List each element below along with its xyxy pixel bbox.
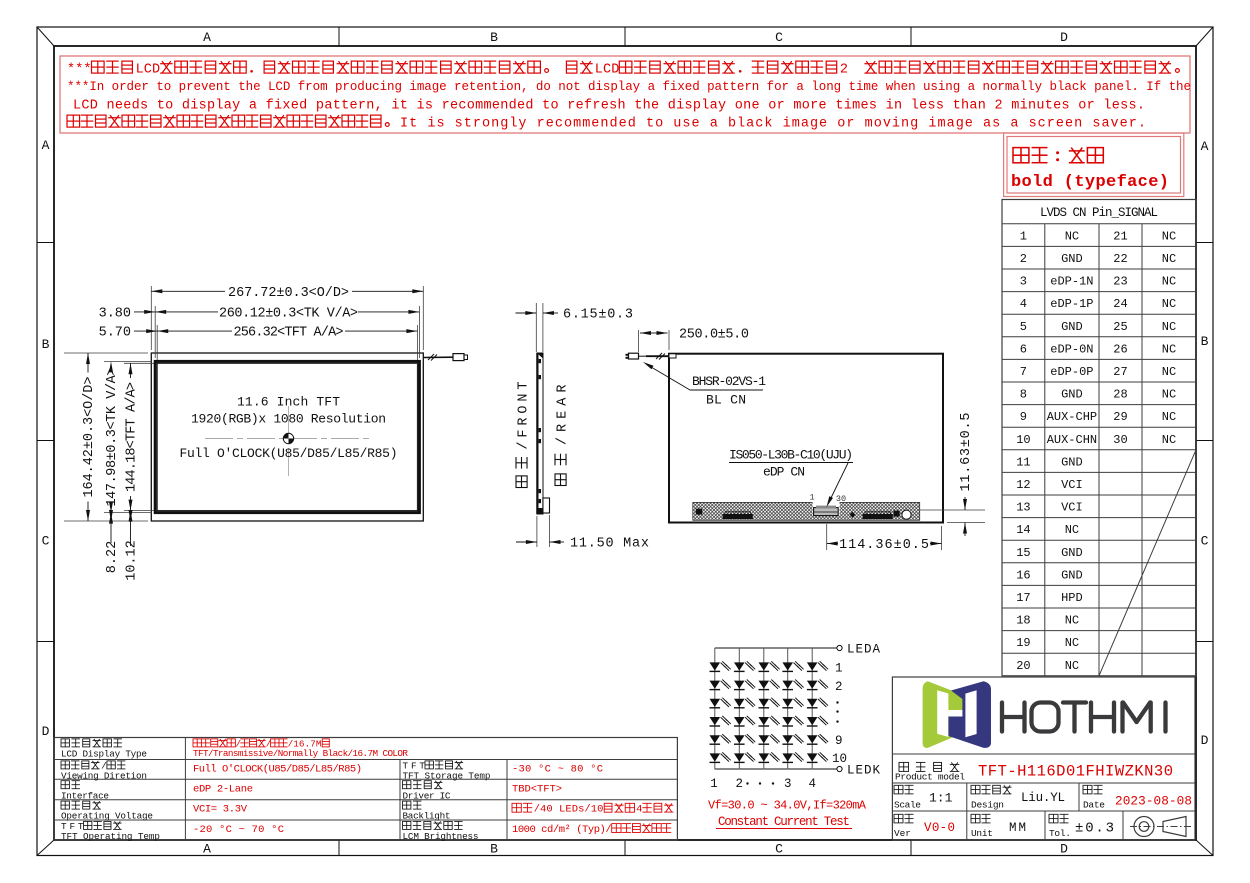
- svg-text:164.42±0.3<O/D>: 164.42±0.3<O/D>: [82, 377, 97, 498]
- svg-text:3: 3: [1020, 275, 1027, 289]
- svg-text:2: 2: [1020, 252, 1027, 266]
- svg-text:15: 15: [1016, 546, 1030, 560]
- svg-text:267.72±0.3<O/D>: 267.72±0.3<O/D>: [228, 286, 349, 301]
- svg-text:10.12: 10.12: [125, 540, 140, 581]
- svg-text:1: 1: [809, 493, 814, 503]
- svg-text:IS050-L30B-C10(UJU): IS050-L30B-C10(UJU): [729, 448, 853, 463]
- svg-text:NC: NC: [1065, 659, 1079, 673]
- svg-text:B: B: [42, 337, 50, 352]
- svg-text:24: 24: [1113, 297, 1127, 311]
- svg-text:NC: NC: [1162, 365, 1176, 379]
- svg-text:114.36±0.5: 114.36±0.5: [839, 538, 929, 553]
- svg-text:27: 27: [1113, 365, 1127, 379]
- svg-text:1000 cd/m² (Typ)/: 1000 cd/m² (Typ)/: [512, 824, 612, 836]
- svg-text:VCI: VCI: [1061, 478, 1083, 492]
- svg-text:1: 1: [835, 662, 843, 676]
- svg-text:11: 11: [1016, 455, 1030, 469]
- svg-text:20: 20: [1016, 659, 1030, 673]
- svg-text:Backlight: Backlight: [403, 811, 451, 822]
- svg-text:LEDK: LEDK: [847, 764, 880, 778]
- svg-text:NC: NC: [1162, 275, 1176, 289]
- svg-text:C: C: [1201, 534, 1209, 549]
- svg-text:NC: NC: [1162, 252, 1176, 266]
- svg-text:BL CN: BL CN: [706, 393, 746, 408]
- svg-text:C: C: [775, 30, 783, 45]
- svg-text:260.12±0.3<TK V/A>: 260.12±0.3<TK V/A>: [219, 306, 358, 321]
- svg-text:14: 14: [1016, 523, 1030, 537]
- svg-text:LCM Brightness: LCM Brightness: [403, 831, 479, 842]
- svg-text:Full O'CLOCK(U85/D85/L85/R85): Full O'CLOCK(U85/D85/L85/R85): [193, 764, 362, 776]
- svg-text:17: 17: [1016, 591, 1030, 605]
- svg-text:1: 1: [710, 777, 718, 791]
- svg-text:LVDS CN Pin_SIGNAL: LVDS CN Pin_SIGNAL: [1040, 206, 1158, 220]
- svg-text:12: 12: [1016, 478, 1030, 492]
- svg-text:16: 16: [1016, 568, 1030, 582]
- svg-text:eDP-1P: eDP-1P: [1050, 297, 1093, 311]
- svg-text:Interface: Interface: [61, 790, 109, 801]
- svg-text:NC: NC: [1162, 388, 1176, 402]
- svg-text:5: 5: [1020, 320, 1027, 334]
- svg-text:LCD needs to display a fixed p: LCD needs to display a fixed pattern, it…: [73, 99, 1145, 114]
- svg-text:NC: NC: [1162, 342, 1176, 356]
- svg-text:Ver: Ver: [894, 828, 911, 839]
- svg-text:30: 30: [836, 494, 846, 504]
- svg-text:TFT/Transmissive/Normally Blac: TFT/Transmissive/Normally Black/16.7M CO…: [193, 748, 408, 759]
- svg-text:2023-08-08: 2023-08-08: [1115, 794, 1192, 809]
- svg-text:18: 18: [1016, 614, 1030, 628]
- svg-text:eDP 2-Lane: eDP 2-Lane: [193, 783, 253, 795]
- svg-text:LCD: LCD: [595, 63, 620, 78]
- svg-text:MM: MM: [1009, 821, 1026, 835]
- svg-text:9: 9: [1020, 410, 1027, 424]
- svg-text:NC: NC: [1065, 636, 1079, 650]
- svg-text:GND: GND: [1061, 568, 1083, 582]
- svg-text:Vf=30.0 ~ 34.0V,If=320mA: Vf=30.0 ~ 34.0V,If=320mA: [708, 799, 867, 813]
- svg-text:B: B: [1201, 334, 1209, 349]
- svg-text:D: D: [1060, 842, 1068, 857]
- svg-text:eDP-0N: eDP-0N: [1050, 342, 1093, 356]
- svg-text:2: 2: [736, 777, 744, 791]
- svg-text:LEDA: LEDA: [847, 643, 880, 657]
- svg-text:11.63±0.5: 11.63±0.5: [959, 413, 974, 492]
- svg-text:C: C: [42, 534, 50, 549]
- svg-text:D: D: [42, 724, 50, 739]
- svg-text:Unit: Unit: [971, 828, 993, 839]
- svg-text:VCI= 3.3V: VCI= 3.3V: [193, 804, 248, 816]
- svg-text:A: A: [1201, 139, 1209, 154]
- svg-text:10: 10: [1016, 433, 1030, 447]
- svg-text:TBD<TFT>: TBD<TFT>: [512, 783, 562, 795]
- svg-text:1:1: 1:1: [929, 791, 953, 806]
- svg-text:147.98±0.3<TK V/A>: 147.98±0.3<TK V/A>: [105, 368, 120, 507]
- svg-text:6: 6: [1020, 342, 1027, 356]
- svg-text:3.80: 3.80: [99, 306, 131, 321]
- svg-text:BHSR-02VS-1: BHSR-02VS-1: [692, 374, 766, 389]
- svg-text:VCI: VCI: [1061, 501, 1083, 515]
- svg-text:4: 4: [1020, 297, 1027, 311]
- svg-text:NC: NC: [1162, 410, 1176, 424]
- svg-text:28: 28: [1113, 388, 1127, 402]
- svg-text:-30 °C ~ 80 °C: -30 °C ~ 80 °C: [512, 764, 603, 776]
- svg-text:B: B: [490, 842, 498, 857]
- svg-text:TFT Operating Temp: TFT Operating Temp: [61, 831, 160, 842]
- svg-text:30: 30: [1113, 433, 1127, 447]
- svg-text:19: 19: [1016, 636, 1030, 650]
- svg-text:GND: GND: [1061, 455, 1083, 469]
- svg-text:250.0±5.0: 250.0±5.0: [679, 328, 749, 343]
- svg-text:3: 3: [784, 777, 792, 791]
- svg-text:6.15±0.3: 6.15±0.3: [563, 308, 633, 323]
- svg-text:A: A: [203, 30, 211, 45]
- svg-text:It is strongly recommended to: It is strongly recommended to use a blac…: [400, 117, 1146, 132]
- svg-text:2: 2: [835, 680, 843, 694]
- svg-text:4: 4: [636, 804, 642, 816]
- svg-text:4: 4: [808, 777, 816, 791]
- svg-text:23: 23: [1113, 275, 1127, 289]
- svg-text:Liu.YL: Liu.YL: [1021, 791, 1065, 805]
- svg-text:Full O'CLOCK(U85/D85/L85/R85): Full O'CLOCK(U85/D85/L85/R85): [180, 446, 398, 461]
- svg-text:LCD: LCD: [136, 63, 161, 78]
- svg-text:GND: GND: [1061, 252, 1083, 266]
- svg-text:2: 2: [840, 63, 848, 78]
- svg-text:D: D: [1060, 30, 1068, 45]
- svg-text:5.70: 5.70: [99, 326, 131, 341]
- svg-text:eDP-0P: eDP-0P: [1050, 365, 1093, 379]
- svg-text:11.6 Inch TFT: 11.6 Inch TFT: [237, 395, 340, 410]
- svg-text:HPD: HPD: [1061, 591, 1083, 605]
- svg-text:GND: GND: [1061, 388, 1083, 402]
- svg-text:144.18<TFT A/A>: 144.18<TFT A/A>: [125, 382, 140, 492]
- svg-text:***In order to prevent the LCD: ***In order to prevent the LCD from prod…: [67, 80, 1191, 94]
- svg-text:Constant Current Test: Constant Current Test: [718, 815, 850, 829]
- svg-text:NC: NC: [1065, 229, 1079, 243]
- svg-text:26: 26: [1113, 342, 1127, 356]
- svg-text:bold (typeface): bold (typeface): [1011, 173, 1169, 192]
- svg-text:Driver IC: Driver IC: [403, 790, 451, 801]
- svg-text:11.50 Max: 11.50 Max: [570, 537, 649, 552]
- svg-text:NC: NC: [1162, 297, 1176, 311]
- svg-text:GND: GND: [1061, 320, 1083, 334]
- svg-text:NC: NC: [1162, 229, 1176, 243]
- svg-text:10: 10: [832, 752, 847, 766]
- svg-text:C: C: [775, 842, 783, 857]
- svg-text:Scale: Scale: [894, 800, 921, 811]
- svg-text:TFT Storage Temp: TFT Storage Temp: [403, 771, 491, 782]
- svg-text:22: 22: [1113, 252, 1127, 266]
- svg-text:8.22: 8.22: [105, 541, 120, 573]
- svg-text:13: 13: [1016, 501, 1030, 515]
- svg-text:LCD Display Type: LCD Display Type: [61, 749, 147, 760]
- svg-text:21: 21: [1113, 229, 1127, 243]
- svg-text:TFT-H116D01FHIWZKN30: TFT-H116D01FHIWZKN30: [978, 763, 1173, 781]
- svg-text:Design: Design: [971, 800, 1004, 811]
- svg-text:A: A: [203, 842, 211, 857]
- svg-text:Tol.: Tol.: [1049, 828, 1071, 839]
- svg-text:256.32<TFT A/A>: 256.32<TFT A/A>: [234, 326, 344, 341]
- svg-text:NC: NC: [1065, 523, 1079, 537]
- svg-text:-20 °C ~ 70 °C: -20 °C ~ 70 °C: [193, 824, 284, 836]
- svg-text:Date: Date: [1083, 800, 1105, 811]
- svg-text:29: 29: [1113, 410, 1127, 424]
- svg-text:AUX-CHN: AUX-CHN: [1047, 433, 1097, 447]
- svg-text:±0.3: ±0.3: [1075, 821, 1114, 837]
- svg-text:V0-0: V0-0: [924, 821, 955, 835]
- svg-text:NC: NC: [1065, 614, 1079, 628]
- svg-text:9: 9: [835, 734, 843, 748]
- svg-text:Product model: Product model: [895, 772, 965, 783]
- svg-text:eDP-1N: eDP-1N: [1050, 275, 1093, 289]
- svg-text:NC: NC: [1162, 320, 1176, 334]
- svg-text:eDP CN: eDP CN: [763, 465, 805, 480]
- svg-text:GND: GND: [1061, 546, 1083, 560]
- svg-text:8: 8: [1020, 388, 1027, 402]
- svg-text:D: D: [1201, 733, 1209, 748]
- svg-text:25: 25: [1113, 320, 1127, 334]
- svg-text:1920(RGB)x 1080 Resolution: 1920(RGB)x 1080 Resolution: [191, 412, 386, 427]
- svg-text:NC: NC: [1162, 433, 1176, 447]
- svg-text:1: 1: [1020, 229, 1027, 243]
- svg-text:AUX-CHP: AUX-CHP: [1047, 410, 1097, 424]
- svg-text:***: ***: [67, 63, 92, 78]
- svg-text:7: 7: [1020, 365, 1027, 379]
- svg-text:A: A: [42, 138, 50, 153]
- svg-text:/40 LEDs/10: /40 LEDs/10: [534, 804, 604, 816]
- svg-text:B: B: [490, 30, 498, 45]
- svg-text:Viewing Diretion: Viewing Diretion: [61, 771, 147, 782]
